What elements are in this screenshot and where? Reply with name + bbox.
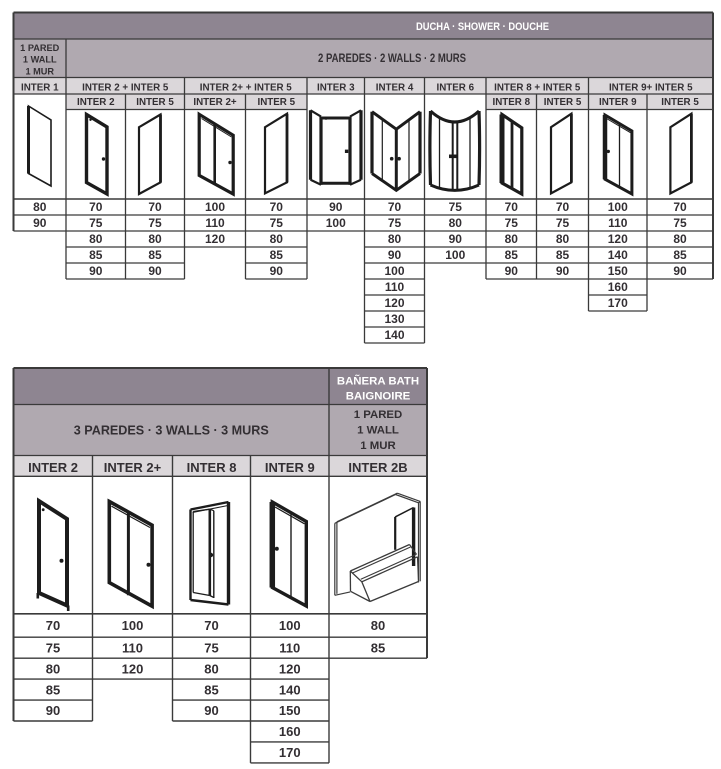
svg-text:120: 120 xyxy=(608,232,628,246)
svg-text:75: 75 xyxy=(204,640,218,655)
svg-text:75: 75 xyxy=(673,216,687,230)
svg-text:BAIGNOIRE: BAIGNOIRE xyxy=(346,391,411,403)
svg-text:85: 85 xyxy=(505,248,519,262)
svg-text:80: 80 xyxy=(46,661,60,676)
svg-text:INTER 5: INTER 5 xyxy=(257,97,295,108)
svg-text:100: 100 xyxy=(326,216,346,230)
svg-text:80: 80 xyxy=(33,200,47,214)
svg-text:90: 90 xyxy=(89,264,103,278)
svg-text:90: 90 xyxy=(329,200,343,214)
svg-text:INTER 4: INTER 4 xyxy=(376,82,414,93)
svg-text:INTER 9: INTER 9 xyxy=(599,97,637,108)
svg-text:70: 70 xyxy=(148,200,162,214)
svg-text:90: 90 xyxy=(148,264,162,278)
svg-text:100: 100 xyxy=(608,200,628,214)
svg-text:75: 75 xyxy=(556,216,570,230)
svg-text:75: 75 xyxy=(505,216,519,230)
svg-text:90: 90 xyxy=(388,248,402,262)
svg-text:INTER 5: INTER 5 xyxy=(544,97,582,108)
svg-text:INTER 2: INTER 2 xyxy=(28,460,78,475)
svg-text:120: 120 xyxy=(384,296,404,310)
svg-text:160: 160 xyxy=(608,280,628,294)
svg-text:170: 170 xyxy=(608,296,628,310)
svg-text:100: 100 xyxy=(445,248,465,262)
svg-text:100: 100 xyxy=(279,618,301,633)
svg-text:85: 85 xyxy=(46,682,60,697)
svg-text:100: 100 xyxy=(122,618,144,633)
svg-text:85: 85 xyxy=(270,248,284,262)
svg-text:90: 90 xyxy=(33,216,47,230)
svg-text:80: 80 xyxy=(89,232,103,246)
svg-text:110: 110 xyxy=(205,216,225,230)
svg-text:80: 80 xyxy=(371,618,385,633)
svg-text:INTER 5: INTER 5 xyxy=(661,97,699,108)
svg-text:80: 80 xyxy=(388,232,402,246)
svg-text:BAÑERA BATH: BAÑERA BATH xyxy=(337,375,419,388)
svg-text:140: 140 xyxy=(608,248,628,262)
svg-text:70: 70 xyxy=(673,200,687,214)
svg-text:70: 70 xyxy=(89,200,103,214)
svg-text:85: 85 xyxy=(89,248,103,262)
svg-text:75: 75 xyxy=(270,216,284,230)
svg-text:70: 70 xyxy=(556,200,570,214)
svg-text:90: 90 xyxy=(556,264,570,278)
svg-text:80: 80 xyxy=(204,661,218,676)
svg-text:70: 70 xyxy=(505,200,519,214)
svg-text:INTER 1: INTER 1 xyxy=(21,82,59,93)
svg-text:110: 110 xyxy=(122,640,143,655)
svg-text:INTER 2 + INTER 5: INTER 2 + INTER 5 xyxy=(82,82,169,93)
svg-text:85: 85 xyxy=(371,640,385,655)
svg-text:120: 120 xyxy=(122,661,144,676)
svg-text:INTER 6: INTER 6 xyxy=(436,82,474,93)
svg-text:DUCHA · SHOWER · DOUCHE: DUCHA · SHOWER · DOUCHE xyxy=(416,21,549,33)
svg-text:85: 85 xyxy=(204,682,218,697)
svg-text:75: 75 xyxy=(89,216,103,230)
svg-text:70: 70 xyxy=(204,618,218,633)
svg-text:3 PAREDES · 3 WALLS · 3 MURS: 3 PAREDES · 3 WALLS · 3 MURS xyxy=(74,423,269,437)
svg-text:90: 90 xyxy=(449,232,463,246)
svg-text:INTER 3: INTER 3 xyxy=(317,82,355,93)
svg-text:INTER 8 + INTER 5: INTER 8 + INTER 5 xyxy=(494,82,581,93)
svg-text:INTER 8: INTER 8 xyxy=(492,97,530,108)
svg-text:75: 75 xyxy=(46,640,60,655)
svg-text:INTER 2+: INTER 2+ xyxy=(104,460,162,475)
svg-text:INTER 2+ + INTER 5: INTER 2+ + INTER 5 xyxy=(200,82,293,93)
svg-text:120: 120 xyxy=(279,661,301,676)
svg-text:1 PARED: 1 PARED xyxy=(354,409,403,421)
svg-text:110: 110 xyxy=(608,216,628,230)
svg-text:1 WALL: 1 WALL xyxy=(357,425,399,437)
svg-text:2 PAREDES · 2 WALLS · 2 MURS: 2 PAREDES · 2 WALLS · 2 MURS xyxy=(318,52,466,65)
svg-text:150: 150 xyxy=(608,264,628,278)
svg-text:75: 75 xyxy=(388,216,402,230)
svg-text:70: 70 xyxy=(270,200,284,214)
svg-text:70: 70 xyxy=(388,200,402,214)
svg-text:140: 140 xyxy=(384,328,404,342)
svg-text:90: 90 xyxy=(46,703,60,718)
svg-text:1 MUR: 1 MUR xyxy=(360,440,395,452)
svg-text:75: 75 xyxy=(449,200,463,214)
svg-text:90: 90 xyxy=(505,264,519,278)
svg-text:INTER 2B: INTER 2B xyxy=(348,460,407,475)
svg-text:INTER 9: INTER 9 xyxy=(265,460,315,475)
svg-text:INTER 9+ INTER 5: INTER 9+ INTER 5 xyxy=(609,82,693,93)
svg-text:80: 80 xyxy=(148,232,162,246)
svg-text:1 PARED: 1 PARED xyxy=(20,43,60,53)
svg-text:170: 170 xyxy=(279,745,301,760)
svg-text:INTER 2: INTER 2 xyxy=(77,97,115,108)
svg-text:INTER 2+: INTER 2+ xyxy=(193,97,237,108)
svg-text:85: 85 xyxy=(556,248,570,262)
svg-text:1 WALL: 1 WALL xyxy=(23,55,57,65)
svg-text:130: 130 xyxy=(384,312,404,326)
svg-text:80: 80 xyxy=(673,232,687,246)
svg-text:110: 110 xyxy=(385,280,405,294)
svg-text:90: 90 xyxy=(673,264,687,278)
svg-text:70: 70 xyxy=(46,618,60,633)
svg-text:110: 110 xyxy=(279,640,300,655)
svg-text:100: 100 xyxy=(384,264,404,278)
svg-text:140: 140 xyxy=(279,682,301,697)
svg-text:85: 85 xyxy=(673,248,687,262)
svg-text:90: 90 xyxy=(204,703,218,718)
svg-text:75: 75 xyxy=(148,216,162,230)
svg-text:100: 100 xyxy=(205,200,225,214)
svg-text:80: 80 xyxy=(556,232,570,246)
svg-text:85: 85 xyxy=(148,248,162,262)
svg-text:INTER 5: INTER 5 xyxy=(136,97,174,108)
svg-text:120: 120 xyxy=(205,232,225,246)
svg-text:160: 160 xyxy=(279,724,301,739)
svg-text:90: 90 xyxy=(270,264,284,278)
svg-text:80: 80 xyxy=(505,232,519,246)
svg-text:150: 150 xyxy=(279,703,301,718)
svg-text:1 MUR: 1 MUR xyxy=(25,66,54,76)
svg-text:80: 80 xyxy=(449,216,463,230)
svg-text:80: 80 xyxy=(270,232,284,246)
svg-text:INTER 8: INTER 8 xyxy=(187,460,237,475)
